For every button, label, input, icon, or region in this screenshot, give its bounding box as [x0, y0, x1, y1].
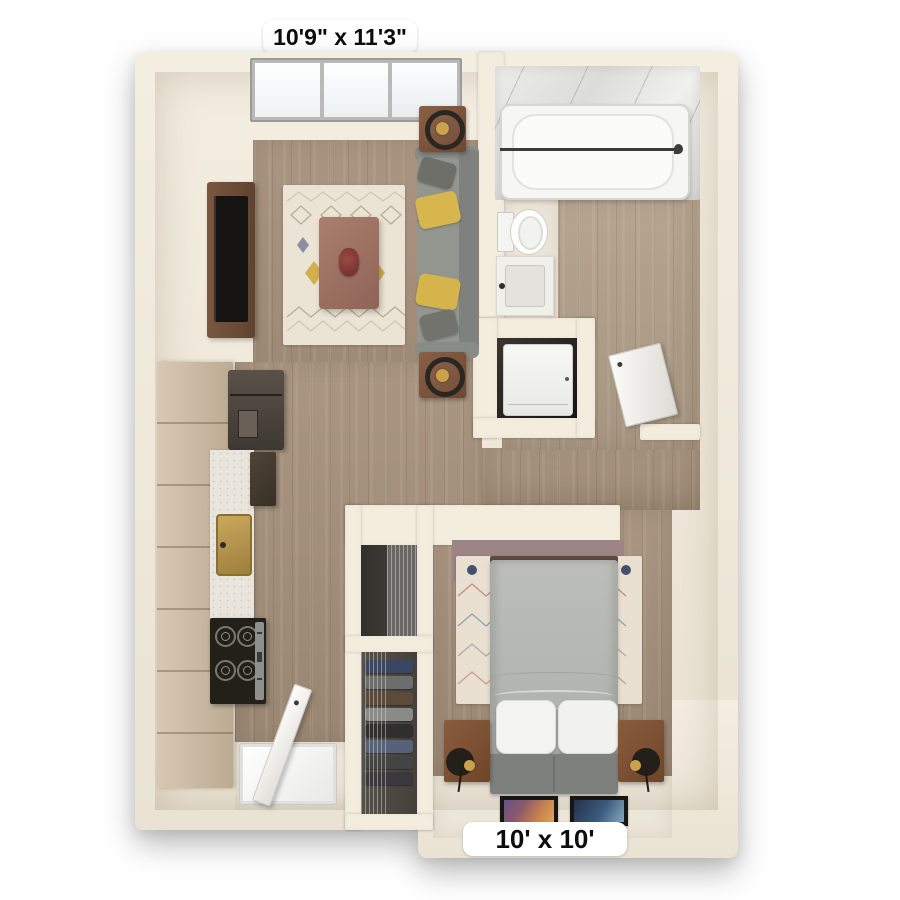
sconce-gold [630, 760, 641, 771]
washer-hinge [565, 377, 569, 381]
toilet-seat [518, 216, 543, 250]
sink-basin [505, 265, 545, 307]
vanity-sink [496, 256, 554, 316]
shower-head [674, 144, 683, 154]
upper-cabinet [250, 452, 276, 506]
sink-faucet [220, 542, 226, 548]
closet-wall-bottom [345, 814, 433, 830]
washer-dryer [503, 344, 573, 416]
sconce-gold [464, 760, 475, 771]
wall-bathroom-bottom [640, 424, 700, 440]
table-centerpiece [339, 248, 359, 276]
duvet-wrinkle [492, 672, 616, 683]
bed-pillow-right [558, 700, 618, 754]
stove-control-panel [255, 622, 264, 700]
door-handle [293, 700, 299, 706]
laundry-nook-wall-right [577, 318, 595, 438]
closet-lower-shelving [361, 652, 417, 814]
closet-upper-shelving [361, 545, 417, 636]
hallway-floor [482, 448, 700, 510]
kitchen-sink [216, 514, 252, 576]
bed-pillow-left [496, 700, 556, 754]
sofa-back [459, 150, 479, 354]
side-table-top [419, 106, 466, 152]
stove-burner [215, 660, 236, 681]
stove [210, 618, 266, 704]
side-table-bottom [419, 352, 466, 398]
dimension-label-bedroom: 10' x 10' [463, 822, 627, 856]
wire-shelf-texture [361, 652, 387, 814]
closet-wall-left [345, 505, 361, 830]
window-pane [324, 63, 389, 117]
sofa [415, 146, 481, 358]
closet-wall-right [417, 505, 433, 830]
door-handle [617, 361, 623, 367]
floorplan [0, 0, 900, 900]
lamp-gold-center [436, 369, 449, 382]
fridge-seam [230, 394, 282, 396]
bed-bench [490, 754, 618, 794]
bench-seam [553, 756, 555, 792]
television [214, 196, 248, 322]
nightstand-right [618, 720, 664, 782]
bathtub-basin [512, 114, 674, 190]
window-pane [255, 63, 320, 117]
refrigerator [228, 370, 284, 450]
washer-door-seam [508, 404, 568, 405]
faucet [499, 283, 505, 289]
floorplan-canvas: 10'9" x 11'3" [0, 0, 900, 900]
wall-bedroom-header [345, 505, 620, 545]
shower-rod [500, 148, 678, 151]
stove-burner [215, 626, 236, 647]
wire-shelf-texture [387, 545, 417, 636]
lamp-gold-center [436, 122, 449, 135]
closet-wall-middle [345, 636, 433, 652]
bathtub [500, 104, 690, 200]
fridge-panel [238, 410, 258, 438]
toilet-bowl [510, 209, 548, 255]
nightstand-left [444, 720, 490, 782]
